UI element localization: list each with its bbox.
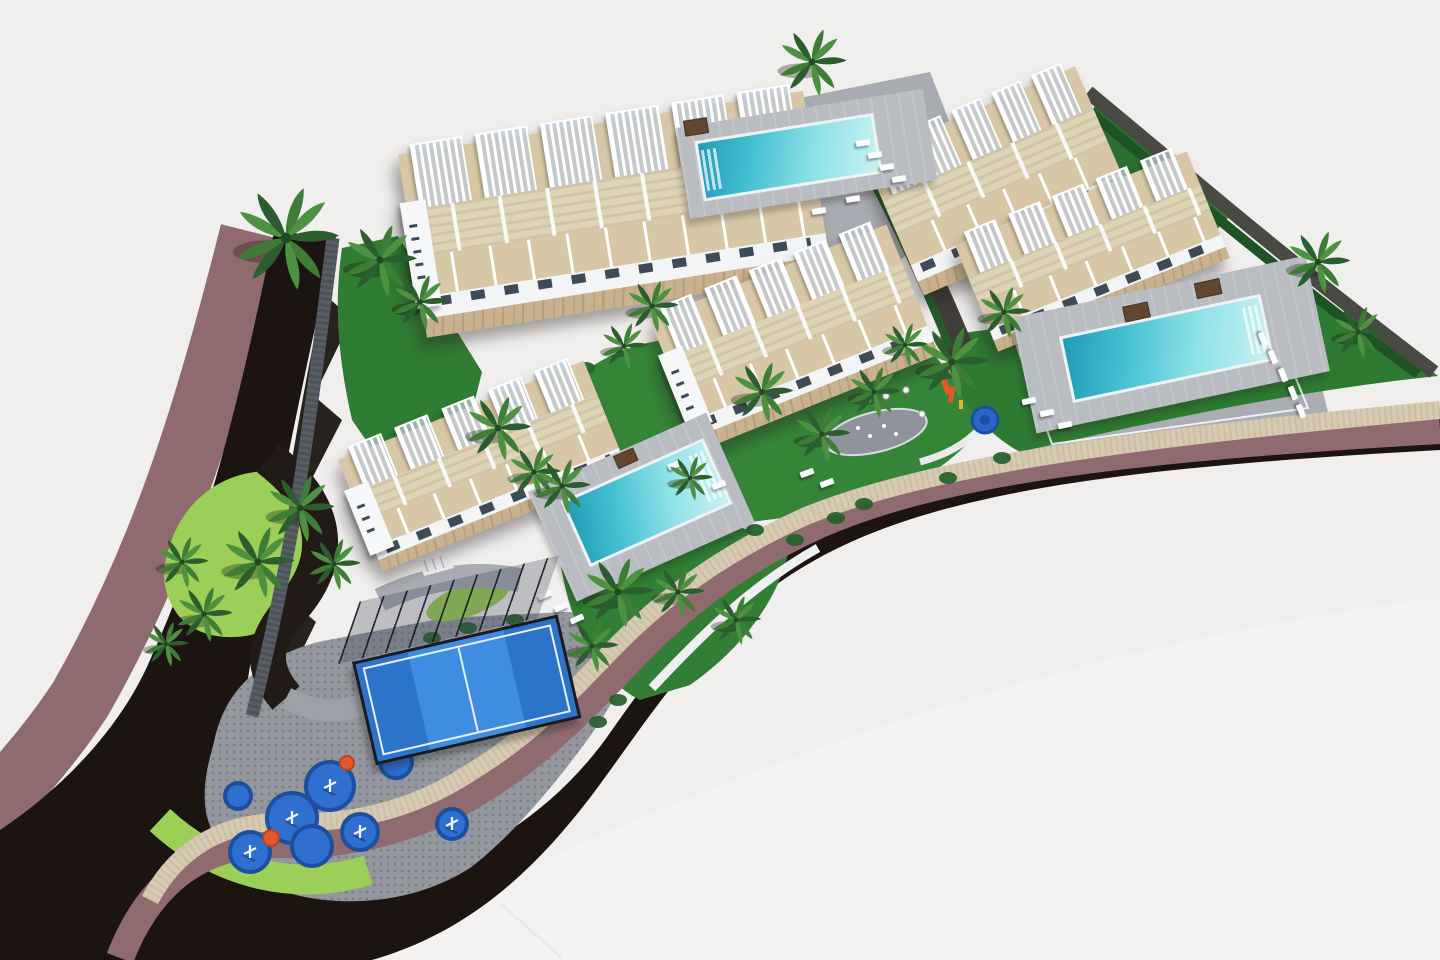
palm-tree — [565, 620, 618, 673]
palm-crown — [819, 431, 825, 437]
palm-crown — [614, 588, 621, 595]
palm-crown — [1315, 259, 1321, 265]
palm-tree — [307, 538, 360, 591]
palm-tree — [731, 361, 794, 423]
palm-crown — [903, 343, 908, 348]
palm-crown — [179, 559, 184, 564]
palm-crown — [675, 589, 680, 594]
palm-crown — [417, 299, 423, 305]
palm-tree — [1331, 306, 1384, 359]
palm-crown — [589, 643, 594, 648]
palm-tree — [847, 366, 900, 419]
palm-crown — [201, 611, 207, 617]
palm-crown — [1355, 329, 1360, 334]
palm-tree — [221, 526, 295, 599]
palm-crown — [297, 505, 304, 512]
palm-tree — [651, 566, 704, 619]
vegetation-layer — [0, 0, 1440, 960]
palm-tree — [233, 186, 339, 291]
palm-crown — [376, 256, 383, 263]
palm-crown — [649, 303, 654, 308]
palm-tree — [1286, 230, 1350, 294]
palm-crown — [688, 476, 693, 481]
palm-crown — [495, 425, 501, 431]
palm-crown — [531, 469, 536, 474]
palm-crown — [759, 389, 765, 395]
palm-tree — [667, 455, 713, 500]
palm-crown — [281, 233, 291, 243]
palm-tree — [625, 280, 678, 333]
palm-crown — [254, 558, 261, 565]
palm-crown — [1001, 309, 1006, 314]
palm-tree — [143, 621, 189, 666]
palm-crown — [734, 618, 739, 623]
palm-tree — [175, 586, 232, 642]
palm-crown — [559, 483, 565, 489]
palm-crown — [809, 59, 816, 66]
palm-tree — [343, 224, 417, 297]
palm-crown — [331, 561, 336, 566]
palm-tree — [915, 326, 989, 399]
palm-tree — [600, 323, 648, 370]
palm-tree — [882, 322, 928, 367]
palm-tree — [582, 557, 654, 628]
palm-tree — [155, 536, 208, 589]
palm-tree — [977, 286, 1030, 339]
palm-crown — [948, 358, 955, 365]
palm-tree — [793, 406, 850, 462]
palm-crown — [622, 344, 627, 349]
palm-crown — [871, 389, 876, 394]
site-aerial-render — [0, 0, 1440, 960]
palm-crown — [164, 642, 169, 647]
palm-tree — [266, 474, 335, 542]
palm-tree — [778, 28, 847, 96]
palm-tree — [711, 595, 762, 645]
